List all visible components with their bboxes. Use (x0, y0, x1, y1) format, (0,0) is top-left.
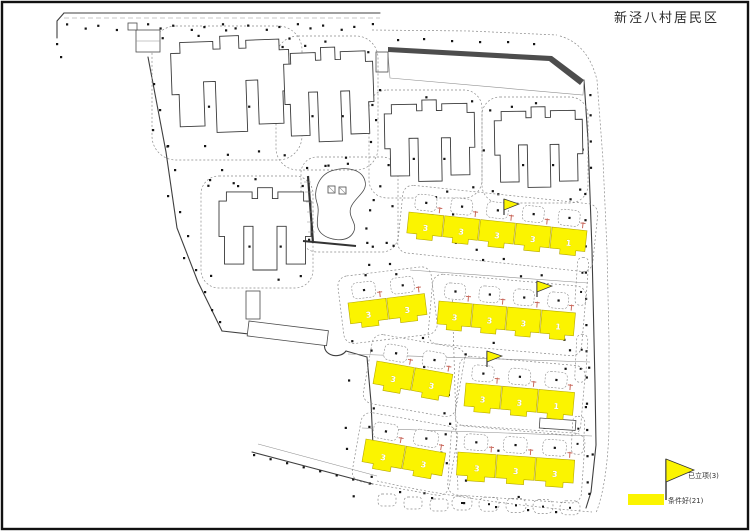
tree-dot (497, 209, 499, 211)
tree-dot (345, 427, 347, 429)
tree-dot (221, 169, 223, 171)
tree-dot (554, 447, 556, 449)
tree-dot (475, 441, 477, 443)
tree-dot (386, 242, 388, 244)
tree-dot (353, 495, 355, 497)
tree-dot (402, 284, 404, 286)
tree-dot (116, 29, 118, 31)
tree-dot (489, 109, 491, 111)
tree-dot (208, 106, 210, 108)
tree-dot (471, 100, 473, 102)
tree-dot (209, 179, 211, 181)
tree-dot (423, 38, 425, 40)
tower-building (219, 188, 311, 270)
tree-dot (187, 235, 189, 237)
tree-dot (431, 497, 433, 499)
tree-dot (454, 290, 456, 292)
tree-dot (222, 23, 224, 25)
tree-dot (288, 38, 290, 40)
tree-dot (379, 185, 381, 187)
tree-dot (586, 455, 588, 457)
tree-dot (370, 141, 372, 143)
tree-dot (191, 29, 193, 31)
building-number: 3 (552, 470, 558, 479)
tree-dot (233, 182, 235, 184)
tree-dot (210, 275, 212, 277)
tree-dot (159, 109, 161, 111)
building-number: 3 (422, 224, 428, 234)
tree-dot (373, 199, 375, 201)
tree-dot (488, 503, 490, 505)
tree-dot (590, 140, 592, 142)
tree-dot (520, 275, 522, 277)
tree-dot (584, 193, 586, 195)
tree-dot (585, 324, 587, 326)
tree-dot (503, 258, 505, 260)
tree-dot (56, 43, 58, 45)
tower-building (283, 46, 375, 143)
tree-dot (482, 372, 484, 374)
tree-dot (204, 145, 206, 147)
tree-dot (248, 106, 250, 108)
tree-dot (341, 29, 343, 31)
tree-dot (483, 149, 485, 151)
tree-dot (345, 157, 347, 159)
tree-dot (425, 202, 427, 204)
tree-dot (399, 491, 401, 493)
tower-footprint (384, 99, 475, 182)
tree-dot (580, 291, 582, 293)
tree-dot (311, 115, 313, 117)
tree-dot (179, 211, 181, 213)
tree-dot (225, 29, 227, 31)
building-number: 3 (474, 464, 480, 473)
tree-dot (565, 368, 567, 370)
tree-dot (581, 272, 583, 274)
tree-dot (366, 242, 368, 244)
tree-dot (523, 296, 525, 298)
tower-building (494, 106, 583, 188)
tree-dot (395, 273, 397, 275)
tree-dot (532, 213, 534, 215)
legend-highlight-label: 条件好(21) (668, 496, 704, 505)
tree-dot (576, 443, 578, 445)
tree-dot (446, 462, 448, 464)
tree-dot (507, 41, 509, 43)
tower-building (384, 99, 475, 182)
tree-dot (368, 264, 370, 266)
tree-dot (542, 506, 544, 508)
tree-dot (369, 209, 371, 211)
tree-dot (373, 407, 375, 409)
tree-dot (587, 481, 589, 483)
tree-dot (204, 291, 206, 293)
tree-dot (346, 448, 348, 450)
tower-building (170, 34, 291, 134)
tree-dot (198, 35, 200, 37)
tree-dot (379, 89, 381, 91)
tree-dot (461, 502, 463, 504)
tower-footprint (283, 46, 375, 143)
tree-dot (425, 96, 427, 98)
tree-dot (588, 367, 590, 369)
tree-dot (555, 379, 557, 381)
tree-dot (433, 359, 436, 362)
tree-dot (97, 25, 99, 27)
tree-dot (372, 246, 374, 248)
tree-dot (446, 191, 448, 193)
tree-dot (422, 337, 424, 339)
tree-dot (592, 453, 594, 455)
tree-dot (286, 462, 288, 464)
tree-dot (371, 104, 373, 106)
tree-dot (207, 185, 209, 187)
tree-dot (278, 26, 280, 28)
tree-dot (395, 352, 398, 355)
tree-dot (515, 504, 517, 506)
tree-dot (297, 23, 299, 25)
tree-dot (589, 94, 591, 96)
tree-dot (393, 245, 395, 247)
tree-dot (590, 167, 592, 169)
site-plan-page: 3 3 3 3 1 3 3 3 3 3 1 3 3 3 3 1 3 3 3 3 … (0, 0, 750, 531)
tree-dot (445, 433, 447, 435)
tree-dot (162, 37, 164, 39)
tower-footprint (219, 188, 311, 270)
tree-dot (166, 145, 168, 147)
building-number: 3 (513, 467, 519, 476)
tree-dot (472, 186, 474, 188)
tree-dot (353, 26, 355, 28)
tower-footprint (494, 106, 583, 188)
tree-dot (535, 102, 537, 104)
tree-dot (389, 263, 391, 265)
tree-dot (160, 27, 162, 29)
tree-dot (280, 246, 282, 248)
tree-dot (451, 40, 453, 42)
tree-dot (569, 507, 571, 509)
tree-dot (327, 165, 329, 167)
tree-dot (397, 39, 399, 41)
tree-dot (465, 353, 467, 355)
tree-dot (497, 450, 499, 452)
tree-dot (270, 458, 272, 460)
tree-dot (584, 219, 586, 221)
tree-dot (348, 379, 350, 381)
tree-dot (541, 274, 543, 276)
tree-dot (227, 154, 229, 156)
tree-dot (388, 164, 390, 166)
tree-dot (585, 406, 587, 408)
tree-dot (555, 511, 557, 513)
tree-dot (372, 23, 374, 25)
building-number: 3 (458, 227, 464, 237)
tree-dot (300, 275, 302, 277)
tree-dot (367, 51, 369, 53)
building-number: 3 (530, 235, 536, 245)
building-number: 3 (494, 231, 500, 241)
tree-dot (527, 509, 529, 511)
legend-flag-label: 已立项(3) (688, 471, 719, 480)
tree-dot (247, 25, 249, 27)
tree-dot (568, 217, 570, 219)
tree-dot (443, 412, 445, 414)
building-number: 3 (516, 399, 522, 408)
tree-dot (511, 106, 513, 108)
building-number: 3 (520, 319, 526, 328)
tree-dot (282, 46, 284, 48)
tree-dot (519, 376, 521, 378)
tree-dot (476, 249, 478, 251)
tree-dot (368, 426, 370, 428)
tree-dot (443, 158, 445, 160)
building-number: 3 (451, 313, 457, 322)
tree-dot (581, 349, 583, 351)
tree-dot (585, 272, 587, 274)
tree-dot (302, 185, 304, 187)
tree-dot (152, 129, 154, 131)
tree-dot (586, 403, 588, 405)
tree-dot (167, 195, 169, 197)
tree-dot (219, 321, 221, 323)
tree-dot (304, 45, 306, 47)
tree-dot (303, 466, 305, 468)
tree-dot (570, 198, 572, 200)
tower-footprint (170, 34, 291, 134)
tree-dot (211, 309, 213, 311)
tree-dot (347, 163, 349, 165)
tree-dot (363, 289, 365, 291)
tree-dot (579, 189, 581, 191)
tree-dot (147, 23, 149, 25)
tree-dot (195, 269, 197, 271)
building-number: 3 (486, 316, 492, 325)
tree-dot (309, 27, 311, 29)
tree-dot (284, 154, 286, 156)
tree-dot (253, 454, 255, 456)
tree-dot (336, 474, 338, 476)
tree-dot (248, 246, 250, 248)
tree-dot (324, 41, 326, 43)
highlight-swatch (628, 494, 664, 505)
tree-dot (552, 164, 554, 166)
tree-dot (375, 119, 377, 121)
tree-dot (493, 342, 495, 344)
tree-dot (322, 25, 324, 27)
tree-dot (577, 428, 579, 430)
tree-dot (586, 429, 588, 431)
tree-dot (258, 150, 260, 152)
tree-dot (371, 476, 373, 478)
tree-dot (66, 23, 68, 25)
tree-dot (495, 506, 497, 508)
tree-dot (590, 114, 592, 116)
tree-dot (449, 423, 451, 425)
building-number: 3 (404, 306, 411, 316)
tree-dot (254, 178, 256, 180)
page-title: 新泾八村居民区 (614, 10, 719, 26)
tree-dot (461, 205, 463, 207)
tree-dot (518, 496, 520, 498)
building-number: 3 (479, 395, 485, 404)
tree-dot (588, 493, 590, 495)
tree-dot (60, 56, 62, 58)
tree-dot (306, 167, 308, 169)
tree-dot (370, 350, 372, 352)
tree-dot (489, 293, 491, 295)
tree-dot (172, 25, 174, 27)
tree-dot (352, 478, 354, 480)
tree-dot (365, 274, 367, 276)
tree-dot (183, 257, 185, 259)
tree-dot (492, 190, 494, 192)
tree-dot (266, 29, 268, 31)
tree-dot (237, 185, 239, 187)
tree-dot (522, 164, 524, 166)
tree-dot (351, 340, 353, 342)
tree-dot (479, 41, 481, 43)
tree-dot (391, 205, 393, 207)
tree-dot (569, 349, 571, 351)
tree-dot (324, 165, 326, 167)
tree-dot (365, 227, 367, 229)
tree-dot (463, 502, 465, 504)
tree-dot (319, 470, 321, 472)
tree-dot (278, 279, 280, 281)
tree-dot (425, 437, 428, 440)
tree-dot (557, 299, 559, 301)
building-number: 3 (365, 310, 372, 320)
tree-dot (235, 27, 237, 29)
tree-dot (385, 430, 388, 433)
tree-dot (85, 28, 87, 30)
tree-dot (153, 83, 155, 85)
site-plan-map: 3 3 3 3 1 3 3 3 3 3 1 3 3 3 3 1 3 3 3 3 … (0, 0, 750, 531)
tree-dot (533, 43, 535, 45)
tree-dot (174, 169, 176, 171)
tree-dot (514, 444, 516, 446)
tree-dot (203, 26, 205, 28)
tree-dot (413, 158, 415, 160)
